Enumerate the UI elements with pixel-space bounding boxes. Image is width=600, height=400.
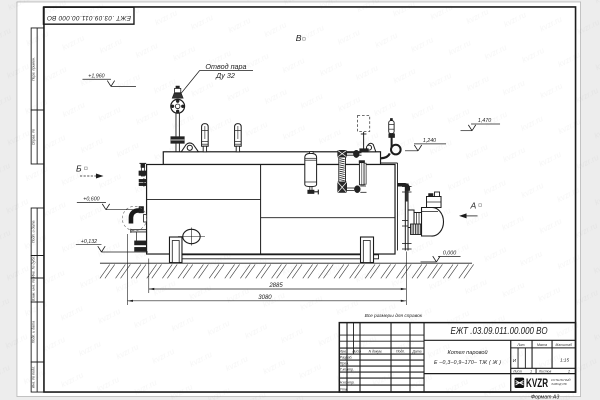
svg-text:В: В bbox=[296, 33, 302, 43]
svg-text:0,000: 0,000 bbox=[443, 251, 456, 257]
svg-text:Инв. № дубл.: Инв. № дубл. bbox=[32, 256, 36, 278]
svg-text:Котел паровой: Котел паровой bbox=[447, 349, 487, 356]
svg-text:Б: Б bbox=[76, 163, 82, 173]
svg-text:Подп. и дата: Подп. и дата bbox=[32, 220, 36, 243]
svg-text:ЗАВОД РФ: ЗАВОД РФ bbox=[551, 382, 567, 386]
svg-text:Взам. инв. №: Взам. инв. № bbox=[32, 279, 36, 301]
svg-text:1: 1 bbox=[530, 370, 532, 374]
svg-text:Все размеры для справок: Все размеры для справок bbox=[365, 313, 423, 319]
svg-text:ЕЖТ .03.09.011.00.000 ВО: ЕЖТ .03.09.011.00.000 ВО bbox=[451, 326, 548, 337]
svg-text:3080: 3080 bbox=[258, 295, 272, 301]
svg-text:2: 2 bbox=[567, 370, 570, 374]
svg-text:Е –0,3–0,9–170– ТЖ ( Ж ): Е –0,3–0,9–170– ТЖ ( Ж ) bbox=[434, 360, 501, 366]
svg-text:Т.контр.: Т.контр. bbox=[340, 368, 354, 372]
svg-text:Дата: Дата bbox=[412, 349, 422, 353]
svg-text:Подп.: Подп. bbox=[396, 349, 405, 353]
svg-text:Лит.: Лит. bbox=[516, 343, 525, 347]
svg-text:Пров.: Пров. bbox=[340, 362, 349, 366]
svg-text:Перв. примен.: Перв. примен. bbox=[32, 57, 36, 81]
svg-text:Изм.: Изм. bbox=[339, 349, 346, 353]
svg-text:Утв.: Утв. bbox=[340, 387, 348, 391]
svg-text:1,470: 1,470 bbox=[478, 118, 491, 124]
svg-text:N докум.: N докум. bbox=[369, 349, 383, 353]
svg-text:А: А bbox=[470, 201, 477, 211]
svg-text:Листов: Листов bbox=[538, 370, 552, 374]
svg-text:Лист: Лист bbox=[512, 370, 522, 374]
svg-text:Отвод пара: Отвод пара bbox=[205, 62, 246, 71]
svg-text:KVZR: KVZR bbox=[526, 378, 548, 390]
svg-text:Справ. №: Справ. № bbox=[32, 129, 36, 145]
svg-text:2885: 2885 bbox=[268, 283, 283, 289]
svg-text:1:15: 1:15 bbox=[560, 357, 569, 362]
svg-text:Формат А3: Формат А3 bbox=[531, 394, 559, 400]
svg-text:+0,600: +0,600 bbox=[83, 197, 99, 203]
svg-text:ЕЖТ .03.09.011.00.000 ВО: ЕЖТ .03.09.011.00.000 ВО bbox=[47, 14, 131, 21]
svg-text:Подп. и дата: Подп. и дата bbox=[32, 321, 36, 344]
svg-text:Инв. № подл.: Инв. № подл. bbox=[32, 366, 36, 388]
svg-text:Масса: Масса bbox=[537, 343, 547, 347]
svg-text:+0,132: +0,132 bbox=[81, 239, 97, 245]
svg-text:Ду 32: Ду 32 bbox=[215, 71, 235, 80]
svg-text:Н.контр.: Н.контр. bbox=[340, 380, 355, 384]
svg-text:Разраб.: Разраб. bbox=[340, 356, 353, 360]
svg-text:1,240: 1,240 bbox=[423, 138, 436, 144]
svg-text:+1,960: +1,960 bbox=[88, 73, 104, 79]
svg-text:Масштаб: Масштаб bbox=[556, 343, 573, 347]
svg-text:Лист: Лист bbox=[351, 349, 361, 353]
